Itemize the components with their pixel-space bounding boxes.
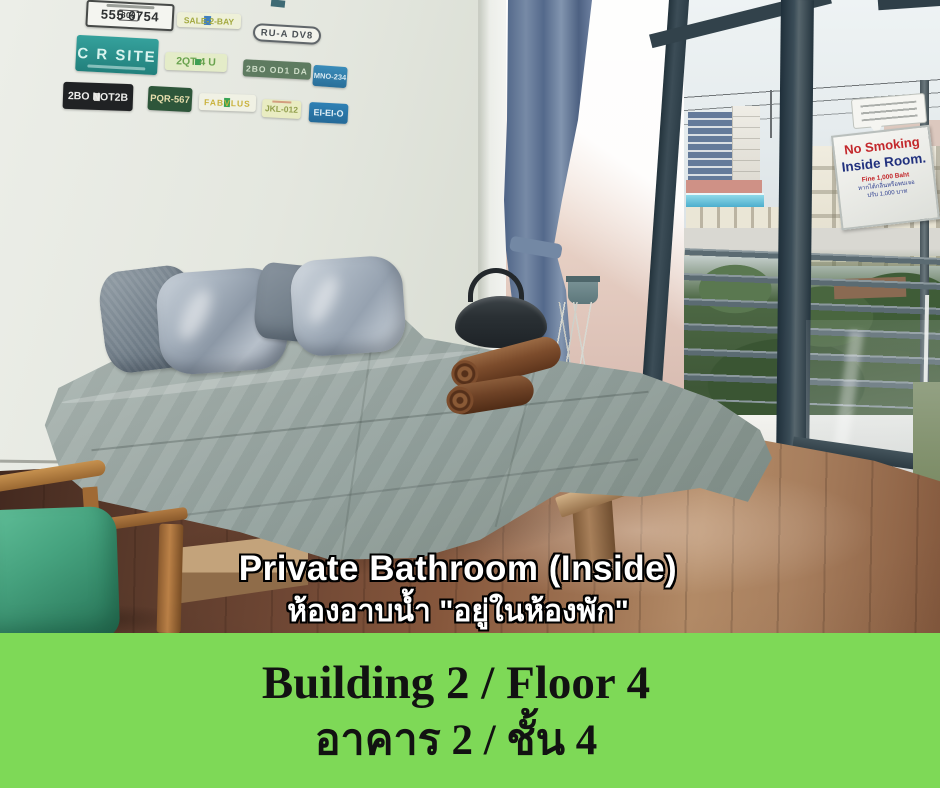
vignette <box>0 0 940 633</box>
room-photo: No Smoking Inside Room. Fine 1,000 Baht … <box>0 0 940 633</box>
location-banner: Building 2 / Floor 4 อาคาร 2 / ชั้น 4 <box>0 633 940 788</box>
banner-line-english: Building 2 / Floor 4 <box>262 654 650 713</box>
banner-line-thai: อาคาร 2 / ชั้น 4 <box>315 715 598 767</box>
listing-image: No Smoking Inside Room. Fine 1,000 Baht … <box>0 0 940 788</box>
